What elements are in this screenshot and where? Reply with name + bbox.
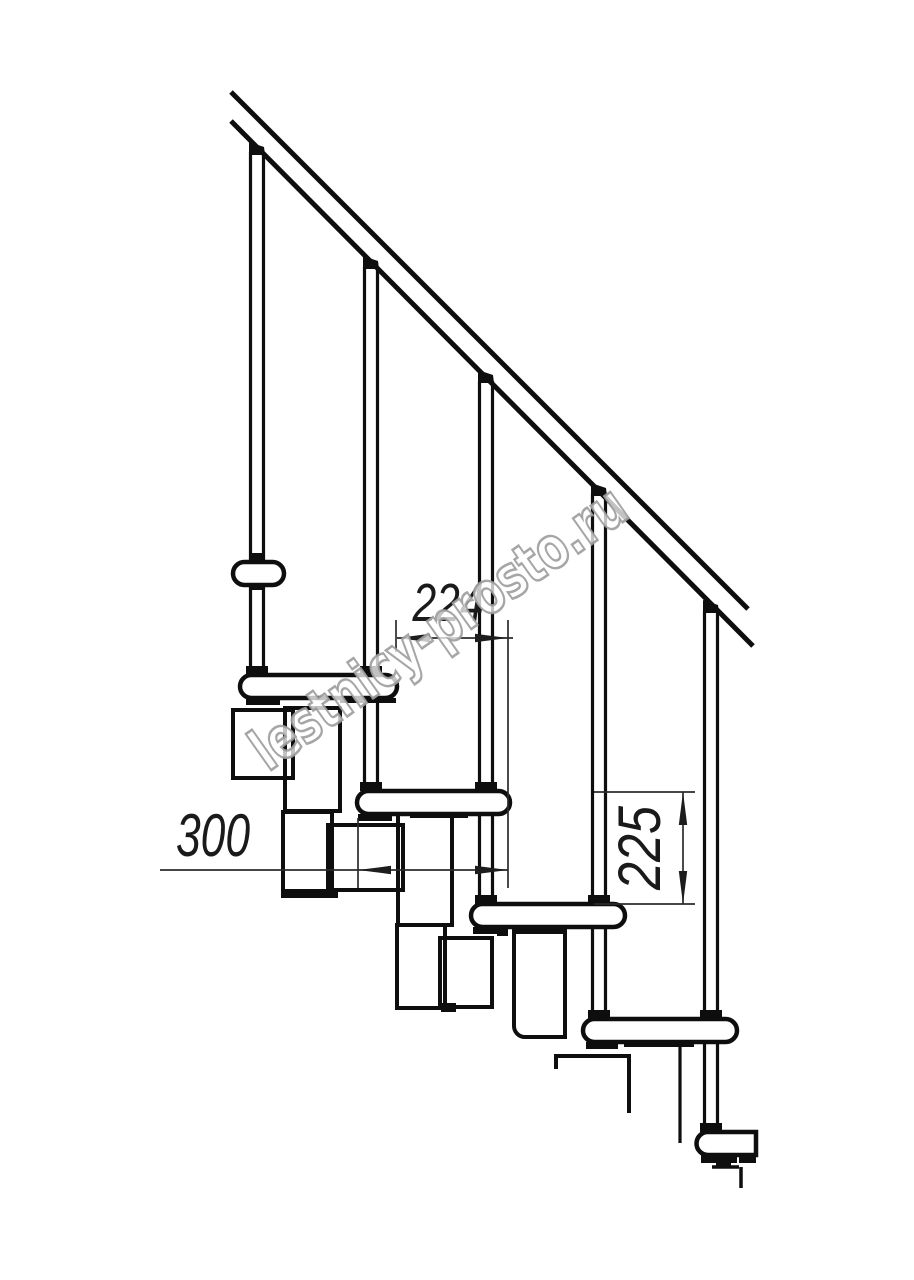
module-box: [440, 938, 492, 1007]
tread-3: [471, 904, 625, 927]
baluster-4: [591, 483, 607, 1023]
module-box: [398, 813, 452, 925]
under-tread-plate: [624, 1040, 694, 1047]
baluster-collar: [246, 666, 268, 675]
module-box-partial: [556, 1056, 629, 1113]
dimension-arrow-left: [358, 866, 391, 874]
tread-4: [583, 1019, 737, 1042]
baluster-collar: [588, 1010, 610, 1019]
module-box: [328, 825, 403, 890]
tread-5: [697, 1132, 757, 1155]
baluster-1: [249, 142, 265, 679]
dimension-label-tread-depth: 300: [176, 802, 250, 869]
baluster-collar: [700, 1010, 722, 1019]
baluster-5: [703, 600, 719, 1136]
module-box: [397, 925, 445, 1008]
tread-2: [357, 791, 510, 814]
module-box: [283, 812, 332, 896]
baluster-rail-connector: [478, 370, 494, 383]
under-tread-plate: [358, 814, 392, 821]
baluster-collar: [700, 1123, 722, 1132]
bracket-body: [233, 562, 284, 585]
under-tread-plate: [410, 812, 468, 818]
watermark-text: lestnicy-prosto.ru: [237, 472, 640, 784]
dimension-step-rise: 225: [594, 792, 695, 904]
under-tread-plate: [497, 927, 508, 936]
bracket-collar-bottom: [250, 584, 263, 590]
baluster-collar: [360, 782, 382, 791]
handrail-top-edge: [231, 92, 748, 609]
under-tread-plate: [586, 1042, 618, 1049]
under-tread-plate: [701, 1155, 737, 1163]
staircase-drawing-page: 224 300 225 lestnicy-prosto.ru: [0, 0, 914, 1280]
under-tread-plate: [515, 927, 565, 934]
module-base-plate: [281, 889, 338, 898]
dimension-label-step-rise: 225: [606, 805, 673, 890]
bracket-collar-top: [249, 553, 265, 562]
under-tread-plate: [739, 1155, 756, 1163]
baluster-collar: [475, 782, 497, 791]
wall-bracket: [233, 553, 284, 590]
dimension-arrow-up: [679, 792, 687, 825]
baluster-collar: [475, 895, 497, 904]
dimension-arrow-down: [679, 871, 687, 904]
staircase-technical-drawing: 224 300 225 lestnicy-prosto.ru: [0, 0, 914, 1280]
baluster-rail-connector: [363, 256, 379, 269]
module-box: [514, 928, 565, 1037]
baluster-collar: [588, 895, 610, 904]
